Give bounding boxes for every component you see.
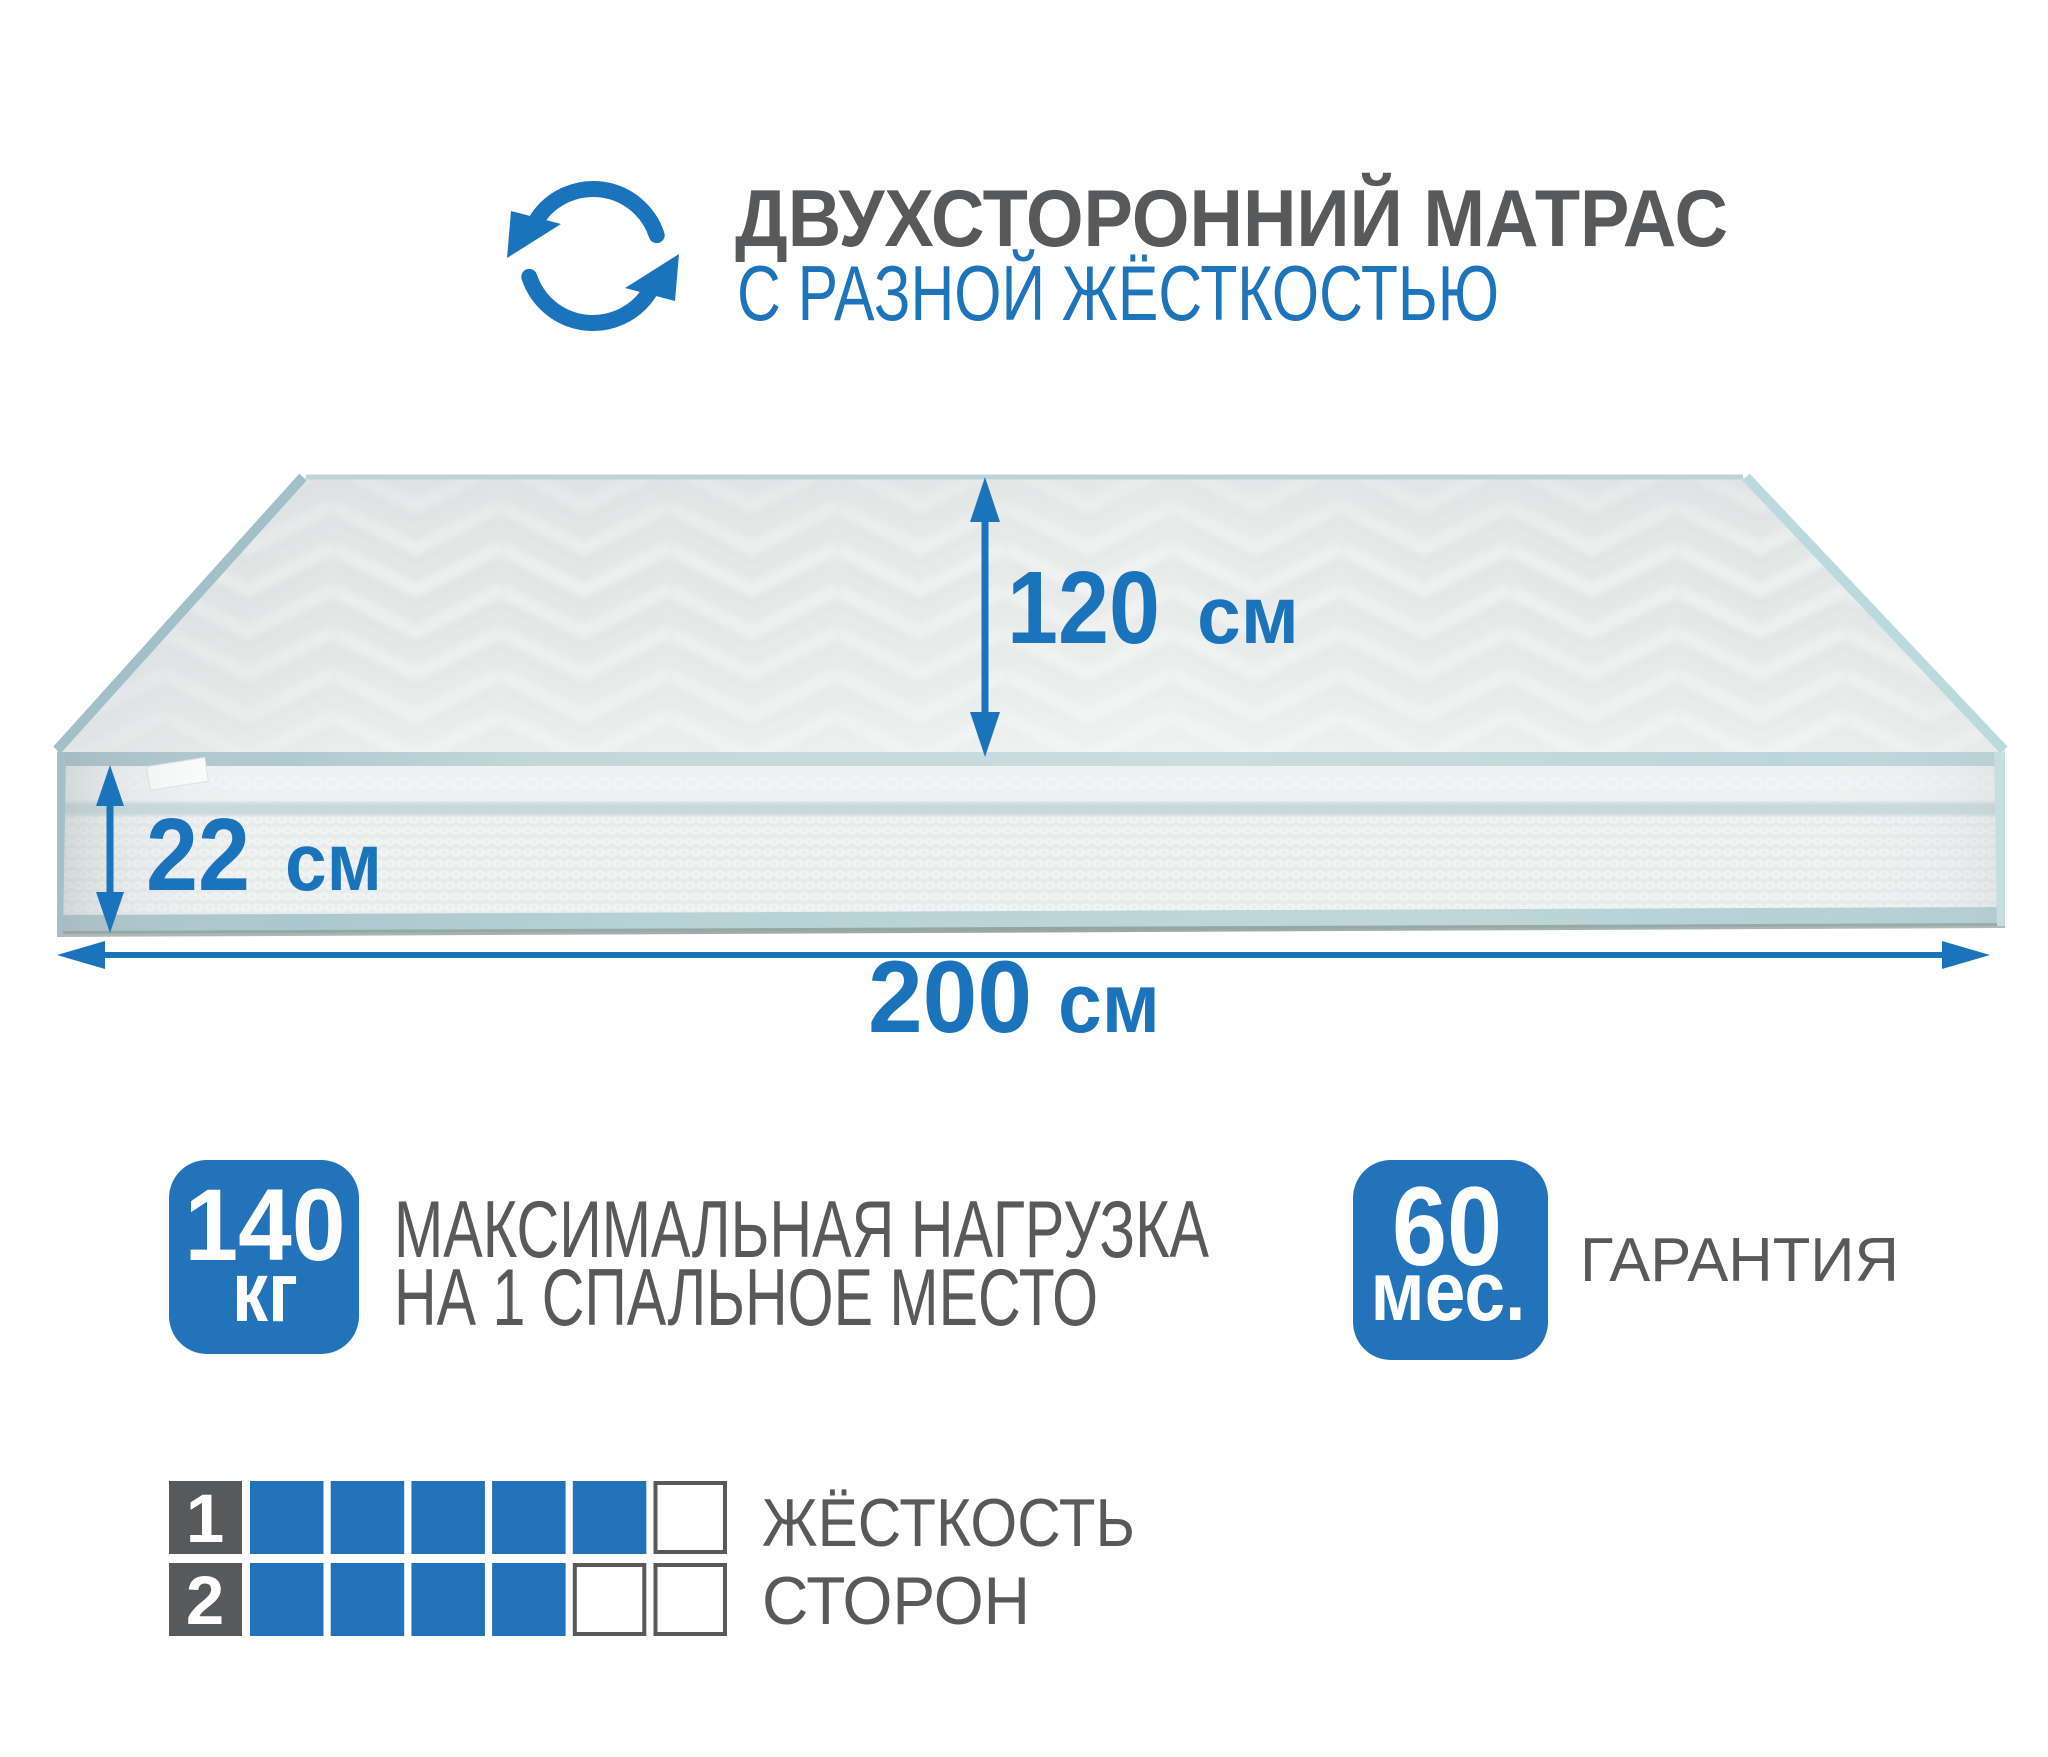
svg-text:22: 22 — [146, 797, 250, 912]
svg-text:1: 1 — [186, 1480, 224, 1557]
svg-text:С РАЗНОЙ ЖЁСТКОСТЬЮ: С РАЗНОЙ ЖЁСТКОСТЬЮ — [737, 249, 1499, 337]
svg-text:кг: кг — [232, 1245, 298, 1340]
svg-text:2: 2 — [186, 1562, 224, 1639]
svg-text:ГАРАНТИЯ: ГАРАНТИЯ — [1580, 1226, 1899, 1295]
svg-text:ЖЁСТКОСТЬ: ЖЁСТКОСТЬ — [762, 1485, 1135, 1561]
svg-text:СТОРОН: СТОРОН — [762, 1563, 1030, 1639]
svg-text:200: 200 — [868, 940, 1032, 1054]
svg-text:см: см — [1058, 956, 1160, 1050]
svg-text:НА 1 СПАЛЬНОЕ МЕСТО: НА 1 СПАЛЬНОЕ МЕСТО — [394, 1253, 1098, 1343]
svg-text:см: см — [285, 817, 382, 908]
svg-text:см: см — [1197, 570, 1299, 661]
svg-text:120: 120 — [1007, 550, 1160, 665]
svg-text:мес.: мес. — [1371, 1244, 1526, 1338]
